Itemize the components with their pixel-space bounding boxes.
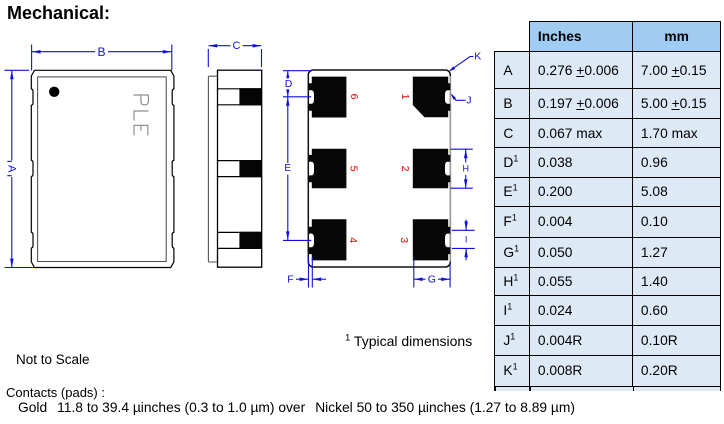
svg-text:2: 2 — [399, 166, 411, 172]
svg-text:5: 5 — [348, 166, 360, 172]
svg-text:1: 1 — [399, 94, 411, 100]
svg-text:K: K — [474, 50, 481, 62]
svg-text:4: 4 — [347, 237, 359, 243]
svg-text:A: A — [6, 165, 18, 173]
svg-text:3: 3 — [398, 237, 410, 243]
svg-text:F: F — [287, 273, 293, 285]
svg-text:C: C — [233, 40, 241, 52]
svg-text:E: E — [284, 163, 291, 174]
svg-text:6: 6 — [348, 94, 360, 100]
svg-text:H: H — [463, 164, 470, 174]
svg-text:G: G — [428, 273, 436, 285]
svg-text:I: I — [465, 234, 468, 244]
svg-text:J: J — [466, 95, 471, 107]
svg-text:D: D — [285, 78, 293, 90]
svg-text:B: B — [97, 45, 105, 59]
